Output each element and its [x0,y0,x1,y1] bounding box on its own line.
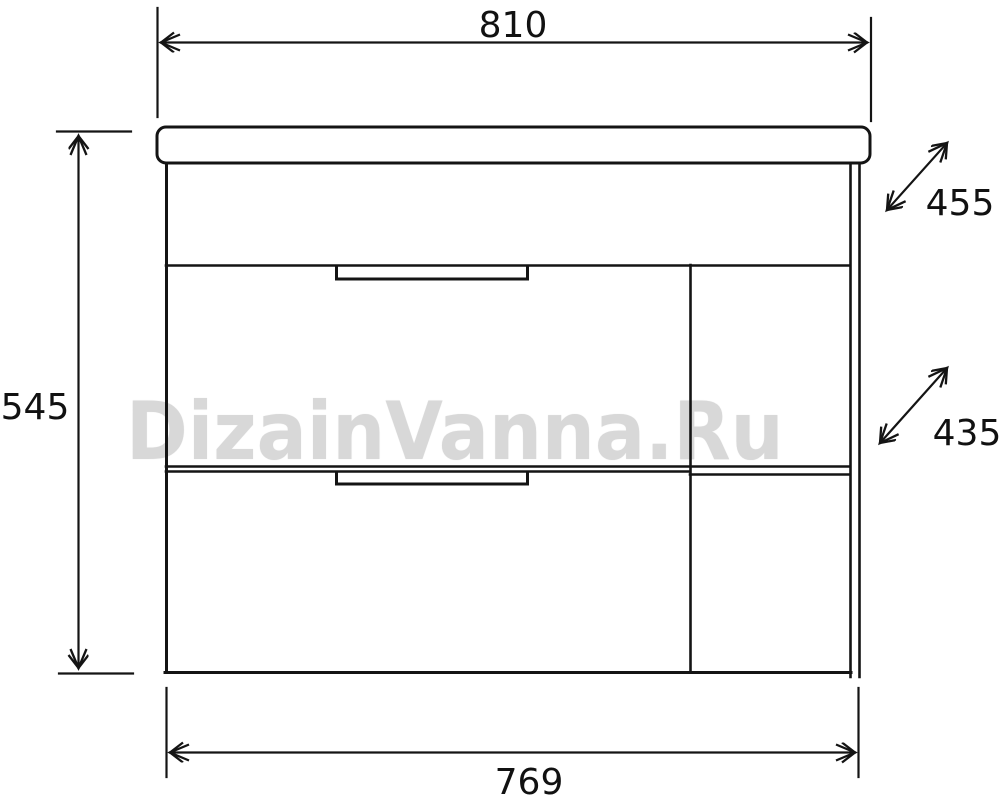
drawer-1-handle-recess [337,266,528,279]
countertop [157,127,870,163]
dim-left-height: 545 [1,132,133,674]
technical-drawing-page: DizainVanna.Ru [0,0,1000,800]
dim-545-label: 545 [1,387,70,428]
dim-810-label: 810 [479,5,548,46]
dim-769-label: 769 [495,762,564,800]
dim-depth-top: 455 [887,143,994,224]
dim-top-width: 810 [158,5,872,121]
dim-bottom-width: 769 [167,688,859,800]
drawer-2-handle-recess [337,472,528,484]
dim-depth-middle: 435 [880,368,1000,454]
vanity-cabinet-drawing: 810 545 455 435 769 [0,0,1000,800]
dim-455-label: 455 [926,183,995,224]
dim-435-label: 435 [933,413,1000,454]
cabinet-structure [157,127,870,677]
